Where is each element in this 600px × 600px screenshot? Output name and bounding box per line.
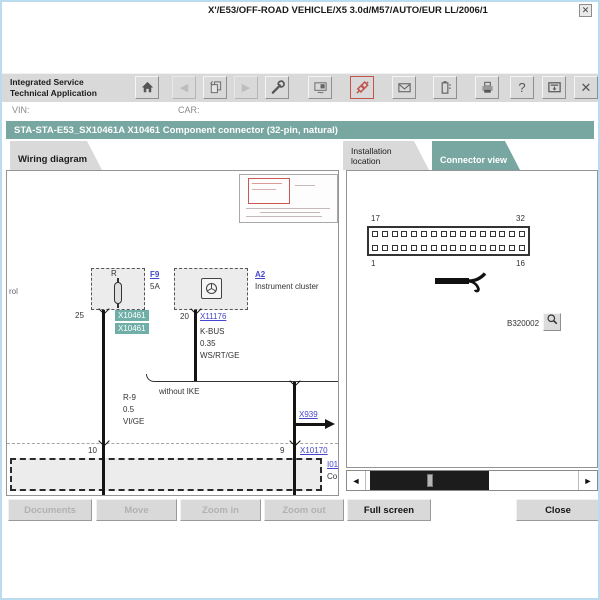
minimize-window-icon bbox=[547, 80, 562, 95]
connector-pin-row bbox=[372, 245, 525, 251]
connector-pin bbox=[372, 231, 378, 237]
connector-pin bbox=[401, 245, 407, 251]
component-box bbox=[10, 458, 322, 491]
vehicle-bar: VIN: CAR: bbox=[2, 102, 598, 119]
connector-link-x939[interactable]: X939 bbox=[299, 410, 318, 419]
documents-button[interactable]: Documents bbox=[8, 499, 92, 521]
magnifier-icon bbox=[546, 313, 559, 331]
app-title-line2: Technical Application bbox=[10, 88, 97, 99]
tab-label: Wiring diagram bbox=[18, 154, 87, 165]
junction-mark bbox=[289, 435, 300, 446]
battery-icon bbox=[438, 80, 453, 95]
connector-link-x10170[interactable]: X10170 bbox=[300, 446, 328, 455]
close-icon: ✕ bbox=[582, 5, 590, 15]
connector-pin bbox=[480, 245, 486, 251]
margin-note: rol bbox=[9, 287, 18, 296]
component-ref-link[interactable]: I01 bbox=[327, 460, 338, 469]
button-label: Zoom in bbox=[202, 505, 239, 516]
minimize-button[interactable] bbox=[542, 76, 566, 99]
tab-wiring-diagram[interactable]: Wiring diagram bbox=[10, 141, 102, 170]
minimap[interactable] bbox=[239, 174, 338, 223]
pin-number-right: 9 bbox=[280, 446, 284, 455]
connector-pin bbox=[499, 245, 505, 251]
button-label: Documents bbox=[24, 505, 76, 516]
highlighted-connector-label: X10461 bbox=[115, 310, 149, 321]
minimap-line bbox=[252, 189, 276, 190]
fuse-terminal-label: R bbox=[111, 269, 117, 278]
monitor-icon bbox=[313, 80, 328, 95]
forward-button[interactable]: ▶ bbox=[234, 76, 258, 99]
connector-pin bbox=[382, 245, 388, 251]
connector-pin bbox=[499, 231, 505, 237]
minimap-line bbox=[260, 212, 320, 213]
connector-pin bbox=[441, 245, 447, 251]
measuring-devices-button[interactable] bbox=[308, 76, 332, 99]
zoom-figure-button[interactable] bbox=[543, 313, 561, 331]
car-label: CAR: bbox=[178, 105, 200, 115]
back-icon: ◀ bbox=[180, 81, 188, 94]
pin-label-32: 32 bbox=[516, 214, 525, 223]
button-label: Full screen bbox=[364, 505, 414, 516]
pin-number-left: 10 bbox=[88, 446, 97, 455]
car-value: X'/E53/OFF-ROAD VEHICLE/X5 3.0d/M57/AUTO… bbox=[208, 5, 488, 16]
documents-icon bbox=[208, 80, 223, 95]
connector-pin bbox=[490, 245, 496, 251]
connector-pin-grid bbox=[372, 231, 525, 251]
left-wire-size: 0.5 bbox=[123, 405, 134, 414]
kbus-name: K-BUS bbox=[200, 327, 224, 336]
scrollbar-thumb[interactable] bbox=[370, 471, 489, 490]
left-wire-color: VI/GE bbox=[123, 417, 144, 426]
pin-label-16: 16 bbox=[516, 259, 525, 268]
minimap-line bbox=[246, 208, 330, 209]
minimap-line bbox=[252, 183, 282, 184]
ista-window: Integrated Service Technical Application… bbox=[0, 0, 600, 600]
exit-button[interactable]: ✕ bbox=[574, 76, 598, 99]
zoom-out-button[interactable]: Zoom out bbox=[264, 499, 344, 521]
dialog-title: STA-STA-E53_SX10461A X10461 Component co… bbox=[14, 125, 338, 136]
pin-label-17: 17 bbox=[371, 214, 380, 223]
minimap-line bbox=[246, 216, 322, 217]
vin-label: VIN: bbox=[12, 105, 30, 115]
plug-icon bbox=[355, 80, 370, 95]
envelope-icon bbox=[397, 80, 412, 95]
close-icon: ✕ bbox=[581, 80, 592, 96]
forward-icon: ▶ bbox=[242, 81, 250, 94]
connector-pin bbox=[519, 231, 525, 237]
cluster-pin: 20 bbox=[180, 312, 189, 321]
wire-kbus bbox=[194, 310, 197, 382]
horizontal-scrollbar: ◄ ► bbox=[346, 470, 598, 491]
button-label: Close bbox=[545, 505, 571, 516]
close-button[interactable]: Close bbox=[516, 499, 600, 521]
connector-pin bbox=[460, 245, 466, 251]
help-button[interactable]: ? bbox=[510, 76, 534, 99]
print-button[interactable] bbox=[475, 76, 499, 99]
fuse-icon bbox=[114, 282, 122, 304]
home-icon bbox=[140, 80, 155, 95]
fuse-ref-link[interactable]: F9 bbox=[150, 270, 159, 279]
tab-label: Installation location bbox=[351, 146, 413, 167]
dialog-title-bar: STA-STA-E53_SX10461A X10461 Component co… bbox=[6, 121, 594, 139]
instrument-cluster-box bbox=[174, 268, 248, 310]
connector-pin bbox=[470, 245, 476, 251]
back-button[interactable]: ◀ bbox=[172, 76, 196, 99]
left-wire-name: R-9 bbox=[123, 393, 136, 402]
connector-drawing bbox=[367, 226, 530, 256]
vehicle-connection-button[interactable] bbox=[350, 76, 374, 99]
scrollbar-grip bbox=[427, 474, 433, 487]
scroll-right-button[interactable]: ► bbox=[578, 471, 597, 490]
tab-label: Connector view bbox=[440, 155, 507, 165]
connector-pin bbox=[519, 245, 525, 251]
messages-button[interactable] bbox=[392, 76, 416, 99]
fuse-box: R bbox=[91, 268, 145, 310]
cluster-name: Instrument cluster bbox=[255, 282, 319, 291]
wire-left bbox=[102, 310, 105, 496]
connector-pin bbox=[372, 245, 378, 251]
connector-pin bbox=[392, 245, 398, 251]
connector-pin bbox=[431, 245, 437, 251]
cluster-ref-link[interactable]: A2 bbox=[255, 270, 265, 279]
kbus-size: 0.35 bbox=[200, 339, 216, 348]
pin-label-1: 1 bbox=[371, 259, 375, 268]
connector-pin bbox=[421, 245, 427, 251]
tab-connector-view[interactable]: Connector view bbox=[432, 141, 520, 170]
full-screen-button[interactable]: Full screen bbox=[347, 499, 431, 521]
continuation-arrow-head bbox=[325, 419, 335, 429]
workshop-button[interactable] bbox=[265, 76, 289, 99]
highlighted-connector-label: X10461 bbox=[115, 323, 149, 334]
printer-icon bbox=[480, 80, 495, 95]
help-icon: ? bbox=[518, 80, 525, 95]
connector-view-panel: 17 32 1 16 B320002 bbox=[346, 170, 598, 468]
connector-pin bbox=[460, 231, 466, 237]
fuse-pin: 25 bbox=[75, 311, 84, 320]
scroll-right-icon: ► bbox=[584, 476, 593, 486]
connector-pin bbox=[411, 231, 417, 237]
operations-button[interactable] bbox=[203, 76, 227, 99]
continuation-arrow bbox=[296, 423, 326, 426]
component-text: Co bbox=[327, 472, 337, 481]
minimap-viewport[interactable] bbox=[248, 178, 290, 204]
scroll-left-button[interactable]: ◄ bbox=[347, 471, 366, 490]
connector-pin bbox=[382, 231, 388, 237]
figure-code: B320002 bbox=[507, 319, 539, 328]
connector-pin bbox=[450, 231, 456, 237]
dialog-close-button[interactable]: ✕ bbox=[579, 4, 592, 17]
instrument-cluster-icon bbox=[201, 278, 222, 299]
connector-boundary-line bbox=[7, 443, 338, 444]
bus-line bbox=[154, 381, 338, 382]
connector-pin bbox=[450, 245, 456, 251]
connector-pin bbox=[392, 231, 398, 237]
move-button[interactable]: Move bbox=[96, 499, 177, 521]
button-label: Move bbox=[124, 505, 148, 516]
connector-pin bbox=[411, 245, 417, 251]
coding-key-icon bbox=[435, 271, 491, 298]
home-button[interactable] bbox=[135, 76, 159, 99]
connector-pin bbox=[421, 231, 427, 237]
junction-mark bbox=[98, 435, 109, 446]
kbus-color: WS/RT/GE bbox=[200, 351, 239, 360]
junction-mark bbox=[289, 375, 300, 386]
connector-pin bbox=[431, 231, 437, 237]
connector-pin bbox=[480, 231, 486, 237]
app-title-line1: Integrated Service bbox=[10, 77, 97, 88]
wrench-icon bbox=[270, 80, 285, 95]
battery-button[interactable] bbox=[433, 76, 457, 99]
button-label: Zoom out bbox=[282, 505, 325, 516]
wiring-diagram-panel: rol R F9 5A A2 Instrument cluster bbox=[6, 170, 339, 496]
zoom-in-button[interactable]: Zoom in bbox=[180, 499, 261, 521]
connector-pin bbox=[441, 231, 447, 237]
fuse-rating: 5A bbox=[150, 282, 160, 291]
connector-pin bbox=[509, 231, 515, 237]
connector-pin bbox=[490, 231, 496, 237]
connector-pin-row bbox=[372, 231, 525, 237]
app-title: Integrated Service Technical Application bbox=[10, 77, 97, 98]
tab-installation-location[interactable]: Installation location bbox=[343, 141, 429, 170]
connector-pin bbox=[401, 231, 407, 237]
connector-link-x11176[interactable]: X11176 bbox=[200, 312, 226, 321]
minimap-line bbox=[295, 185, 315, 186]
scrollbar-track[interactable] bbox=[366, 471, 578, 490]
bus-line-end bbox=[146, 374, 155, 382]
branch-note: without IKE bbox=[159, 387, 199, 396]
scroll-left-icon: ◄ bbox=[352, 476, 361, 486]
connector-pin bbox=[470, 231, 476, 237]
connector-pin bbox=[509, 245, 515, 251]
